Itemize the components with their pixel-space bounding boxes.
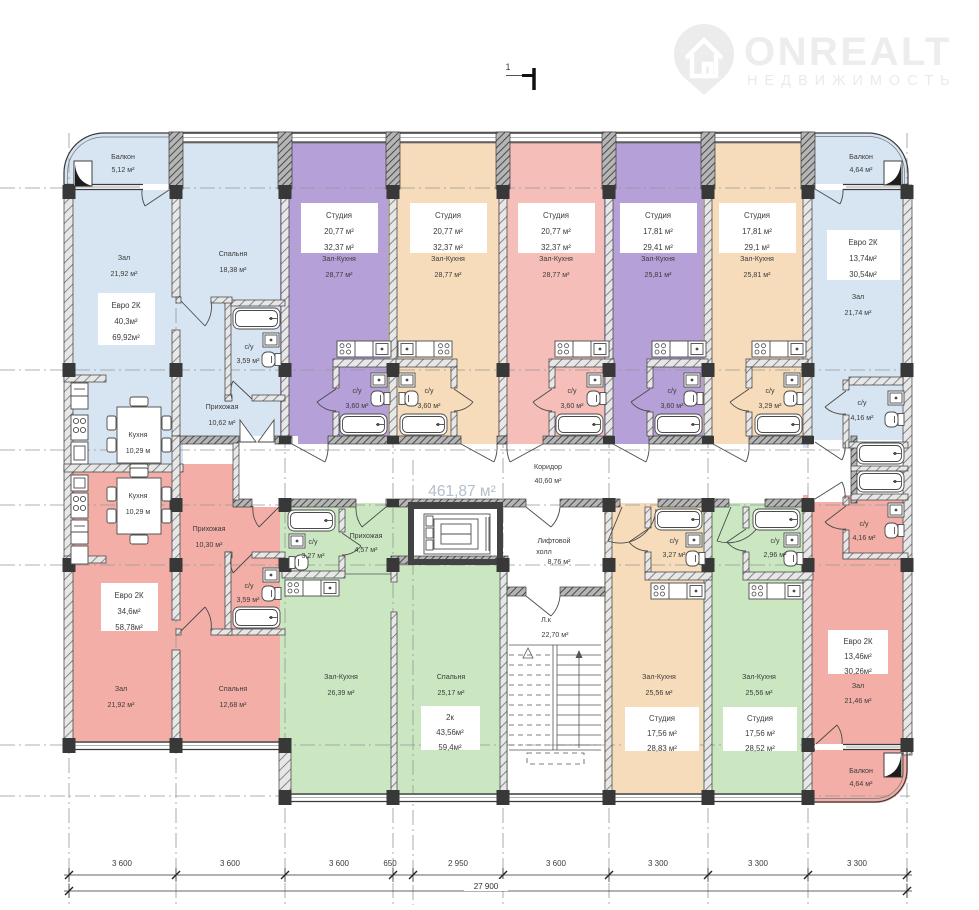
- svg-text:3 600: 3 600: [112, 859, 133, 868]
- svg-text:10,29 м: 10,29 м: [126, 447, 151, 455]
- svg-text:Зал-Кухня: Зал-Кухня: [431, 255, 465, 263]
- svg-text:Зал: Зал: [115, 685, 127, 693]
- svg-text:21,46 м²: 21,46 м²: [845, 697, 873, 705]
- svg-text:20,77 м²: 20,77 м²: [541, 227, 571, 236]
- svg-text:4,16 м²: 4,16 м²: [850, 414, 874, 422]
- svg-text:28,83 м²: 28,83 м²: [647, 744, 677, 753]
- svg-text:3 300: 3 300: [648, 859, 669, 868]
- svg-text:10,29 м: 10,29 м: [126, 508, 151, 516]
- svg-text:18,38 м²: 18,38 м²: [220, 266, 248, 274]
- svg-text:Прихожая: Прихожая: [350, 532, 383, 540]
- svg-text:с/у: с/у: [424, 387, 434, 395]
- svg-text:28,52 м²: 28,52 м²: [745, 744, 775, 753]
- svg-text:10,30 м²: 10,30 м²: [196, 541, 224, 549]
- svg-text:Евро 2К: Евро 2К: [114, 591, 144, 600]
- svg-text:с/у: с/у: [244, 582, 254, 590]
- svg-text:25,81 м²: 25,81 м²: [744, 271, 772, 279]
- svg-text:с/у: с/у: [667, 387, 677, 395]
- svg-text:20,77 м²: 20,77 м²: [324, 227, 354, 236]
- svg-text:с/у: с/у: [669, 537, 679, 545]
- svg-text:Студия: Студия: [326, 211, 352, 220]
- svg-text:Зал-Кухня: Зал-Кухня: [324, 673, 358, 681]
- svg-text:Евро 2К: Евро 2К: [111, 301, 141, 310]
- svg-text:58,78м²: 58,78м²: [115, 623, 143, 632]
- svg-text:Зал-Кухня: Зал-Кухня: [322, 255, 356, 263]
- svg-text:461,87 м²: 461,87 м²: [428, 483, 496, 500]
- svg-text:Студия: Студия: [649, 714, 675, 723]
- svg-text:3,27 м²: 3,27 м²: [301, 552, 325, 560]
- svg-text:3,59 м²: 3,59 м²: [236, 357, 260, 365]
- svg-text:с/у: с/у: [770, 537, 780, 545]
- svg-text:3,59 м²: 3,59 м²: [236, 596, 260, 604]
- svg-text:2 950: 2 950: [448, 859, 469, 868]
- svg-text:Евро 2К: Евро 2К: [848, 238, 878, 247]
- svg-text:3 600: 3 600: [220, 859, 241, 868]
- svg-text:Студия: Студия: [747, 714, 773, 723]
- svg-text:4,64 м²: 4,64 м²: [849, 166, 873, 174]
- svg-text:4,57 м²: 4,57 м²: [354, 546, 378, 554]
- svg-text:40,60 м²: 40,60 м²: [535, 477, 563, 485]
- svg-text:22,70 м²: 22,70 м²: [542, 631, 570, 639]
- svg-text:Лифтовой: Лифтовой: [537, 537, 570, 545]
- svg-text:34,6м²: 34,6м²: [117, 607, 141, 616]
- svg-text:Студия: Студия: [435, 211, 461, 220]
- svg-text:43,56м²: 43,56м²: [436, 728, 464, 737]
- svg-text:с/у: с/у: [859, 520, 869, 528]
- svg-text:32,37 м²: 32,37 м²: [541, 243, 571, 252]
- svg-text:27 900: 27 900: [474, 882, 499, 891]
- svg-text:3 600: 3 600: [546, 859, 567, 868]
- svg-text:с/у: с/у: [244, 343, 254, 351]
- svg-text:40,3м²: 40,3м²: [114, 317, 138, 326]
- svg-text:3,27 м²: 3,27 м²: [662, 551, 686, 559]
- svg-text:Зал-Кухня: Зал-Кухня: [641, 255, 675, 263]
- svg-text:650: 650: [383, 859, 397, 868]
- svg-text:Зал-Кухня: Зал-Кухня: [740, 255, 774, 263]
- svg-text:20,77 м²: 20,77 м²: [433, 227, 463, 236]
- svg-text:21,92 м²: 21,92 м²: [111, 270, 139, 278]
- svg-text:3,29 м²: 3,29 м²: [758, 402, 782, 410]
- svg-text:13,74м²: 13,74м²: [849, 254, 877, 263]
- svg-text:Спальня: Спальня: [437, 673, 466, 681]
- svg-text:17,81 м²: 17,81 м²: [742, 227, 772, 236]
- svg-text:Спальня: Спальня: [219, 250, 248, 258]
- svg-text:21,74 м²: 21,74 м²: [845, 309, 873, 317]
- svg-text:25,56 м²: 25,56 м²: [646, 689, 674, 697]
- svg-text:28,77 м²: 28,77 м²: [326, 271, 354, 279]
- svg-text:ONREALT: ONREALT: [744, 30, 952, 74]
- svg-text:13,46м²: 13,46м²: [844, 652, 872, 661]
- svg-text:3,60 м²: 3,60 м²: [660, 402, 684, 410]
- svg-text:4,64 м²: 4,64 м²: [849, 780, 873, 788]
- svg-text:25,17 м²: 25,17 м²: [438, 689, 466, 697]
- svg-text:Зал-Кухня: Зал-Кухня: [539, 255, 573, 263]
- svg-text:Прихожая: Прихожая: [206, 403, 239, 411]
- svg-text:32,37 м²: 32,37 м²: [433, 243, 463, 252]
- svg-text:25,81 м²: 25,81 м²: [645, 271, 673, 279]
- svg-text:3,60 м²: 3,60 м²: [560, 402, 584, 410]
- svg-text:Студия: Студия: [543, 211, 569, 220]
- svg-text:1: 1: [505, 62, 510, 72]
- svg-text:29,41 м²: 29,41 м²: [643, 243, 673, 252]
- svg-text:2,96 м²: 2,96 м²: [763, 551, 787, 559]
- svg-text:Л.к: Л.к: [541, 616, 552, 624]
- svg-text:с/у: с/у: [567, 387, 577, 395]
- svg-text:Студия: Студия: [744, 211, 770, 220]
- svg-text:59,4м²: 59,4м²: [438, 743, 462, 752]
- svg-text:25,56 м²: 25,56 м²: [746, 689, 774, 697]
- svg-text:с/у: с/у: [857, 399, 867, 407]
- svg-text:НЕДВИЖИМОСТЬ: НЕДВИЖИМОСТЬ: [747, 73, 957, 89]
- svg-text:Балкон: Балкон: [111, 153, 135, 161]
- svg-text:с/у: с/у: [765, 387, 775, 395]
- svg-text:17,56 м²: 17,56 м²: [647, 729, 677, 738]
- svg-text:Прихожая: Прихожая: [193, 525, 226, 533]
- svg-text:3,60 м²: 3,60 м²: [417, 402, 441, 410]
- svg-text:28,77 м²: 28,77 м²: [435, 271, 463, 279]
- svg-text:Коридор: Коридор: [534, 463, 562, 471]
- svg-text:5,12 м²: 5,12 м²: [111, 166, 135, 174]
- svg-text:30,26м²: 30,26м²: [844, 667, 872, 676]
- svg-text:Зал: Зал: [852, 682, 864, 690]
- svg-text:8,76 м²: 8,76 м²: [547, 558, 571, 566]
- svg-text:Зал-Кухня: Зал-Кухня: [742, 673, 776, 681]
- svg-text:30,54м²: 30,54м²: [849, 270, 877, 279]
- svg-text:32,37 м²: 32,37 м²: [324, 243, 354, 252]
- svg-text:3 300: 3 300: [847, 859, 868, 868]
- svg-text:17,81 м²: 17,81 м²: [643, 227, 673, 236]
- svg-text:Спальня: Спальня: [219, 685, 248, 693]
- svg-text:с/у: с/у: [308, 538, 318, 546]
- svg-text:Балкон: Балкон: [849, 767, 873, 775]
- svg-text:29,1 м²: 29,1 м²: [744, 243, 770, 252]
- svg-text:2к: 2к: [446, 713, 454, 722]
- svg-text:Студия: Студия: [645, 211, 671, 220]
- svg-text:Кухня: Кухня: [129, 431, 148, 439]
- svg-text:с/у: с/у: [352, 387, 362, 395]
- svg-text:12,68 м²: 12,68 м²: [220, 701, 248, 709]
- svg-text:10,62 м²: 10,62 м²: [209, 419, 237, 427]
- svg-text:28,77 м²: 28,77 м²: [543, 271, 571, 279]
- svg-text:4,16 м²: 4,16 м²: [852, 534, 876, 542]
- svg-text:Зал: Зал: [852, 293, 864, 301]
- svg-text:Балкон: Балкон: [849, 153, 873, 161]
- svg-text:3 300: 3 300: [748, 859, 769, 868]
- svg-text:Кухня: Кухня: [129, 492, 148, 500]
- svg-text:Евро 2К: Евро 2К: [843, 637, 873, 646]
- svg-text:17,56 м²: 17,56 м²: [745, 729, 775, 738]
- svg-text:холл: холл: [536, 548, 552, 556]
- svg-text:21,92 м²: 21,92 м²: [108, 701, 136, 709]
- svg-text:Зал-Кухня: Зал-Кухня: [642, 673, 676, 681]
- svg-text:26,39 м²: 26,39 м²: [328, 689, 356, 697]
- svg-text:3 600: 3 600: [329, 859, 350, 868]
- svg-text:3,60 м²: 3,60 м²: [345, 402, 369, 410]
- svg-text:69,92м²: 69,92м²: [112, 333, 140, 342]
- svg-text:Зал: Зал: [118, 254, 130, 262]
